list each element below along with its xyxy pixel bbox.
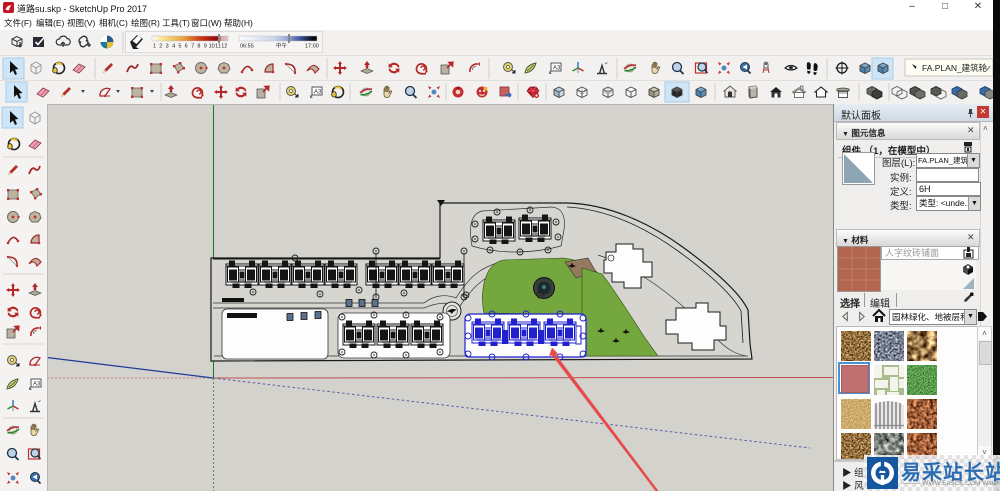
svg-text:11: 11 <box>215 44 221 50</box>
svg-text:9: 9 <box>204 44 207 50</box>
svg-text:8: 8 <box>197 44 200 50</box>
svg-text:中午: 中午 <box>276 42 288 50</box>
svg-text:06:55: 06:55 <box>240 44 254 50</box>
svg-text:4: 4 <box>172 44 175 50</box>
svg-text:FA.PLAN_建筑轮: FA.PLAN_建筑轮 <box>922 63 988 73</box>
svg-text:10: 10 <box>209 44 215 50</box>
svg-text:5: 5 <box>178 44 181 50</box>
svg-text:12: 12 <box>221 44 227 50</box>
svg-text:1: 1 <box>153 44 156 50</box>
svg-text:7: 7 <box>191 44 194 50</box>
svg-text:3: 3 <box>166 44 169 50</box>
svg-text:6: 6 <box>185 44 188 50</box>
svg-text:17:00: 17:00 <box>305 44 319 50</box>
svg-text:2: 2 <box>159 44 162 50</box>
